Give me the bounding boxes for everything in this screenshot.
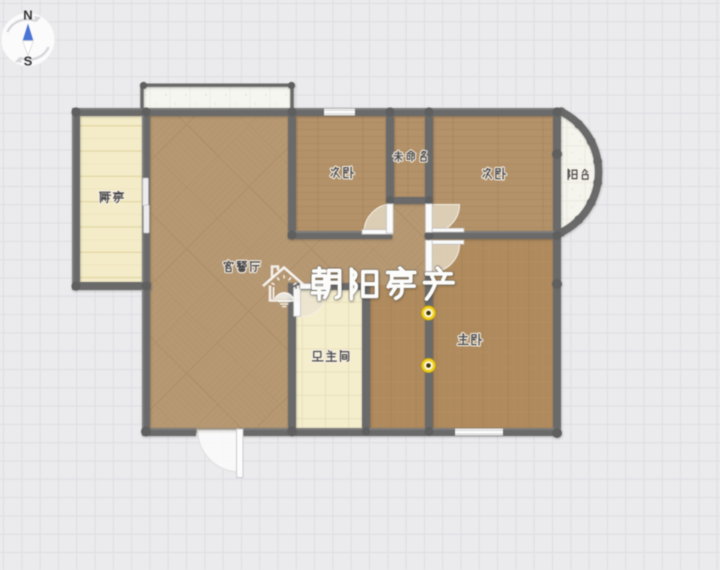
svg-text:S: S [24, 54, 33, 69]
svg-text:N: N [23, 8, 32, 23]
